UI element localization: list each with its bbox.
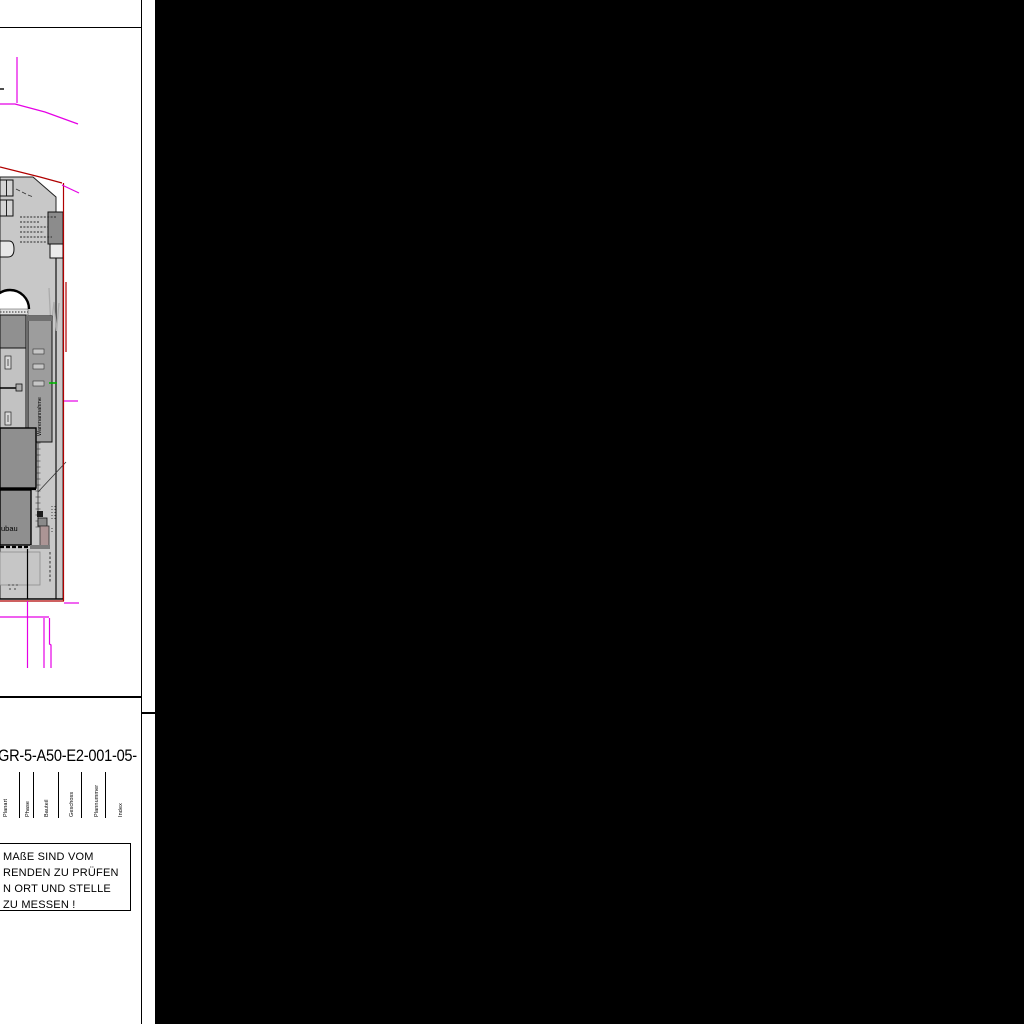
cad-sheet-screenshot: Warenannahme ubau <box>0 0 1024 1024</box>
rooms-mid-left <box>0 348 26 428</box>
blocks-lower: ubau <box>0 428 36 545</box>
floor-plan-drawing: Warenannahme ubau <box>0 0 141 700</box>
sheet-frame-stub-line <box>141 712 155 714</box>
corridor-label: Warenannahme <box>37 397 43 436</box>
rounded-room <box>0 241 14 257</box>
corridor: Warenannahme <box>28 316 52 442</box>
note-line: ZU MESSEN ! <box>3 897 130 913</box>
titleblock-field-planart: Planart <box>3 799 9 817</box>
note-line: RENDEN ZU PRÜFEN <box>3 865 130 881</box>
drawing-number: GR-5-A50-E2-001-05- <box>0 746 137 766</box>
titleblock-separator <box>105 772 106 818</box>
building-label: ubau <box>1 524 18 533</box>
titleblock-field-geschoss: Geschoss <box>69 792 75 817</box>
titleblock-field-index: Index <box>118 803 124 817</box>
titleblock-field-plannummer: Plannummer <box>94 785 100 817</box>
threshold-hatch <box>0 309 28 315</box>
titleblock-separator <box>33 772 34 818</box>
titleblock-separator <box>58 772 59 818</box>
note-line: N ORT UND STELLE <box>3 881 130 897</box>
titleblock-separator <box>81 772 82 818</box>
titleblock-field-phase: Phase <box>25 801 31 817</box>
cad-viewport-canvas[interactable] <box>155 0 1024 1024</box>
entry-block <box>50 244 63 258</box>
note-line: MAßE SIND VOM <box>3 849 130 865</box>
core-block <box>0 315 26 348</box>
measurement-note-box: MAßE SIND VOM RENDEN ZU PRÜFEN N ORT UND… <box>0 843 131 911</box>
titleblock-field-bauteil: Bauteil <box>44 799 50 817</box>
sheet-frame-vertical-line <box>141 0 142 1024</box>
titleblock-separator <box>19 772 20 818</box>
